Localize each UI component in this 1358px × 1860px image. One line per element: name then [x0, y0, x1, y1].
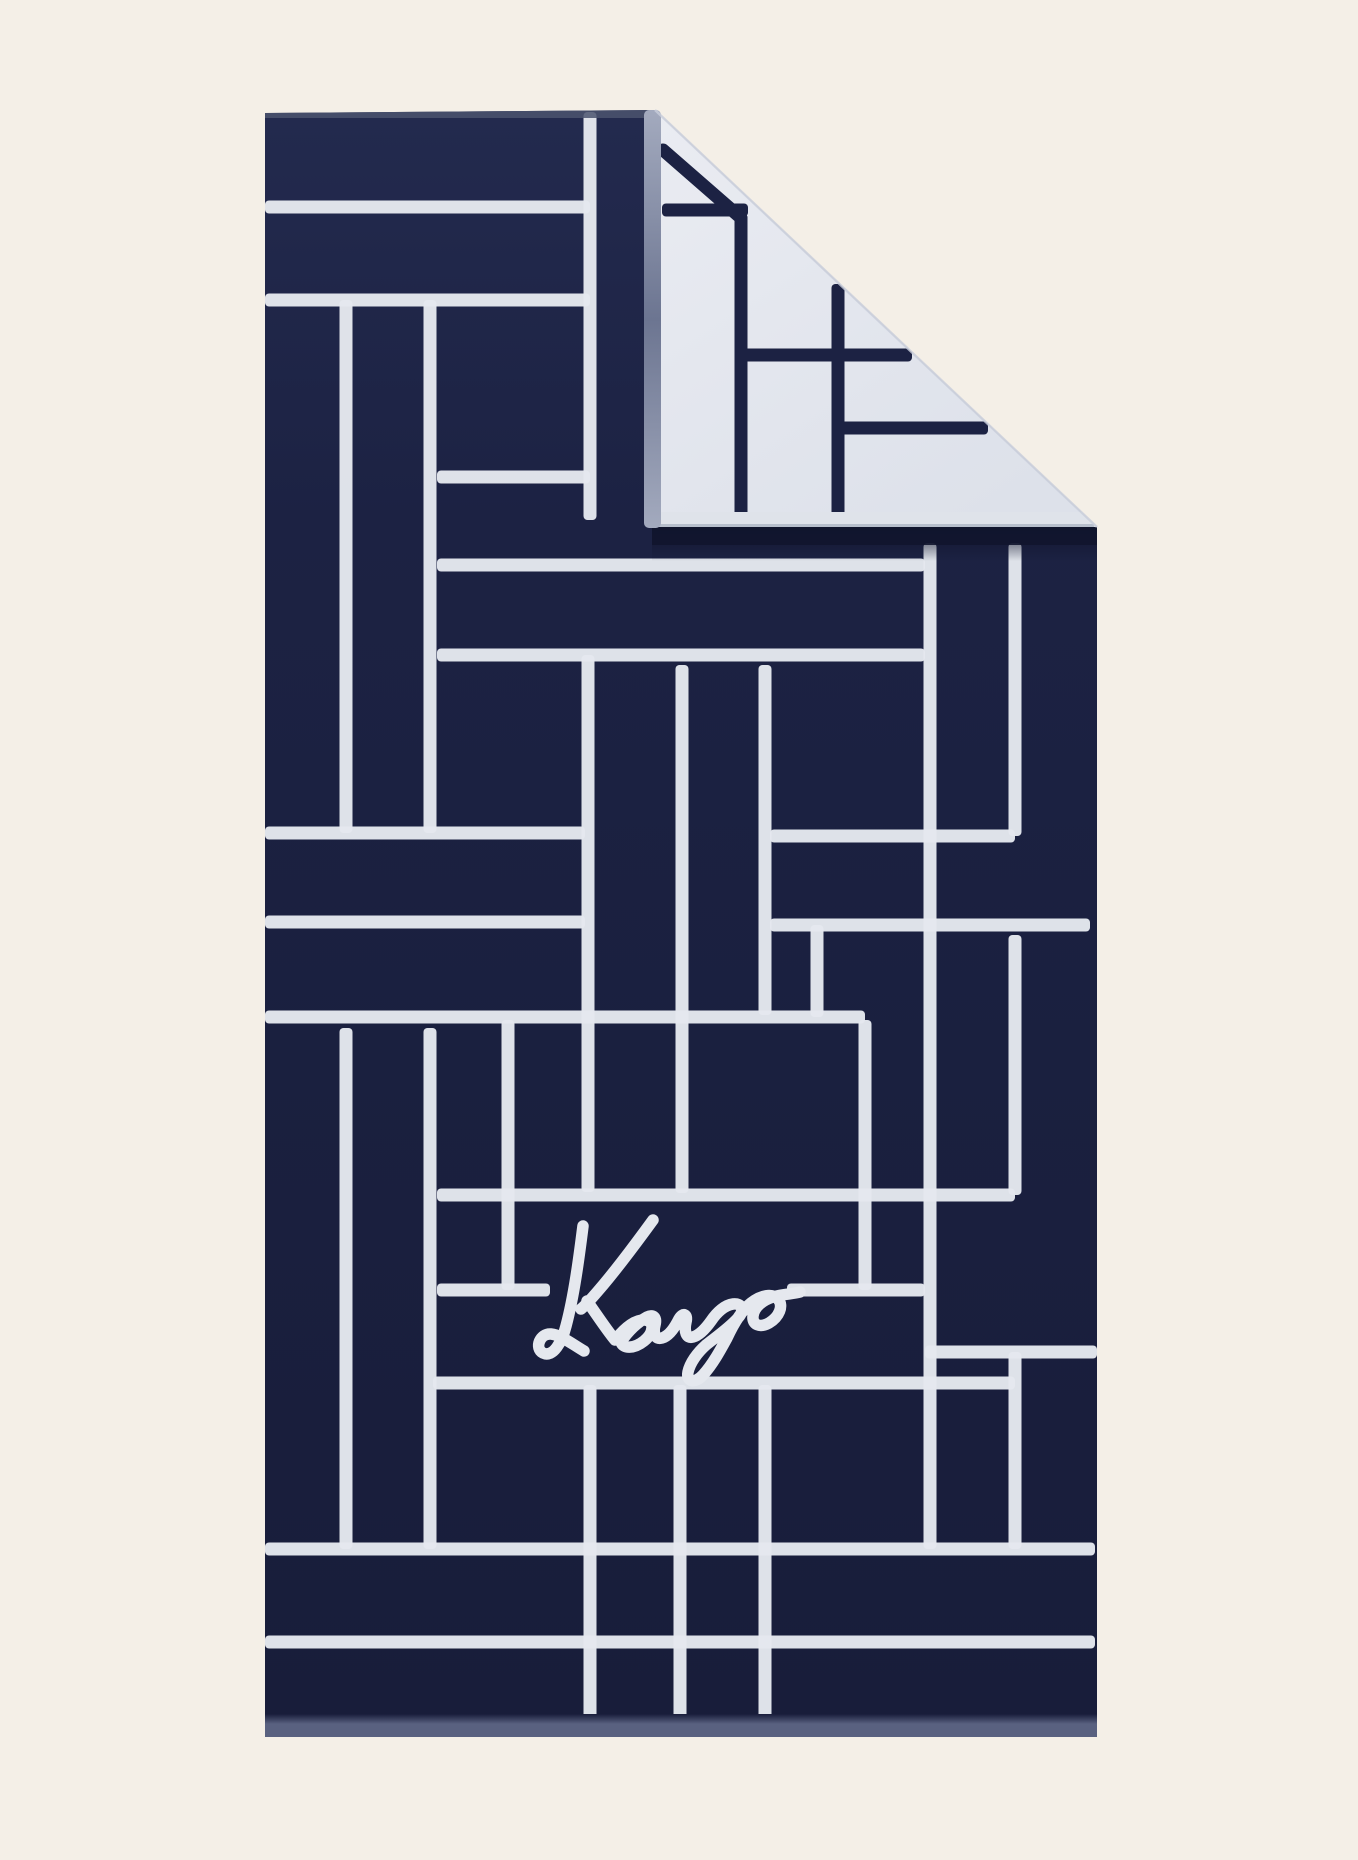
- pattern-line-horizontal: [265, 1011, 865, 1024]
- pattern-line-vertical: [584, 112, 597, 520]
- fold-shadow: [652, 527, 1097, 545]
- pattern-line-vertical: [759, 665, 772, 1015]
- pattern-line-vertical: [924, 543, 937, 1549]
- pattern-line-horizontal: [265, 201, 590, 214]
- towel-render: [0, 0, 1358, 1860]
- pattern-line-horizontal: [787, 1284, 925, 1297]
- flap-line-vertical: [735, 214, 748, 522]
- flap-line-vertical: [832, 284, 845, 522]
- pattern-line-vertical: [1009, 1352, 1022, 1549]
- product-photo: Kenzo: [0, 0, 1358, 1860]
- pattern-line-horizontal: [437, 1284, 550, 1297]
- pattern-line-vertical: [424, 1028, 437, 1549]
- bottom-hem: [265, 1724, 1097, 1737]
- flap-line-horizontal: [838, 422, 988, 435]
- pattern-line-vertical: [1009, 935, 1022, 1195]
- fold-spine-edge: [644, 110, 661, 528]
- pattern-line-horizontal: [437, 649, 925, 662]
- pattern-line-horizontal: [770, 830, 1015, 843]
- pattern-line-vertical: [674, 1385, 687, 1733]
- pattern-line-horizontal: [437, 471, 590, 484]
- flap-line-horizontal: [741, 349, 912, 362]
- pattern-line-vertical: [859, 1020, 872, 1290]
- pattern-line-vertical: [424, 300, 437, 833]
- pattern-line-vertical: [676, 665, 689, 1193]
- pattern-line-vertical: [502, 1020, 515, 1290]
- pattern-line-vertical: [1009, 543, 1022, 836]
- pattern-line-vertical: [582, 655, 595, 1192]
- bottom-hem-shade: [265, 1714, 1097, 1724]
- pattern-line-vertical: [340, 1028, 353, 1549]
- pattern-line-horizontal: [265, 916, 585, 929]
- pattern-line-vertical: [759, 1385, 772, 1733]
- pattern-line-vertical: [340, 300, 353, 833]
- pattern-line-vertical: [811, 925, 824, 1017]
- pattern-line-vertical: [584, 1385, 597, 1733]
